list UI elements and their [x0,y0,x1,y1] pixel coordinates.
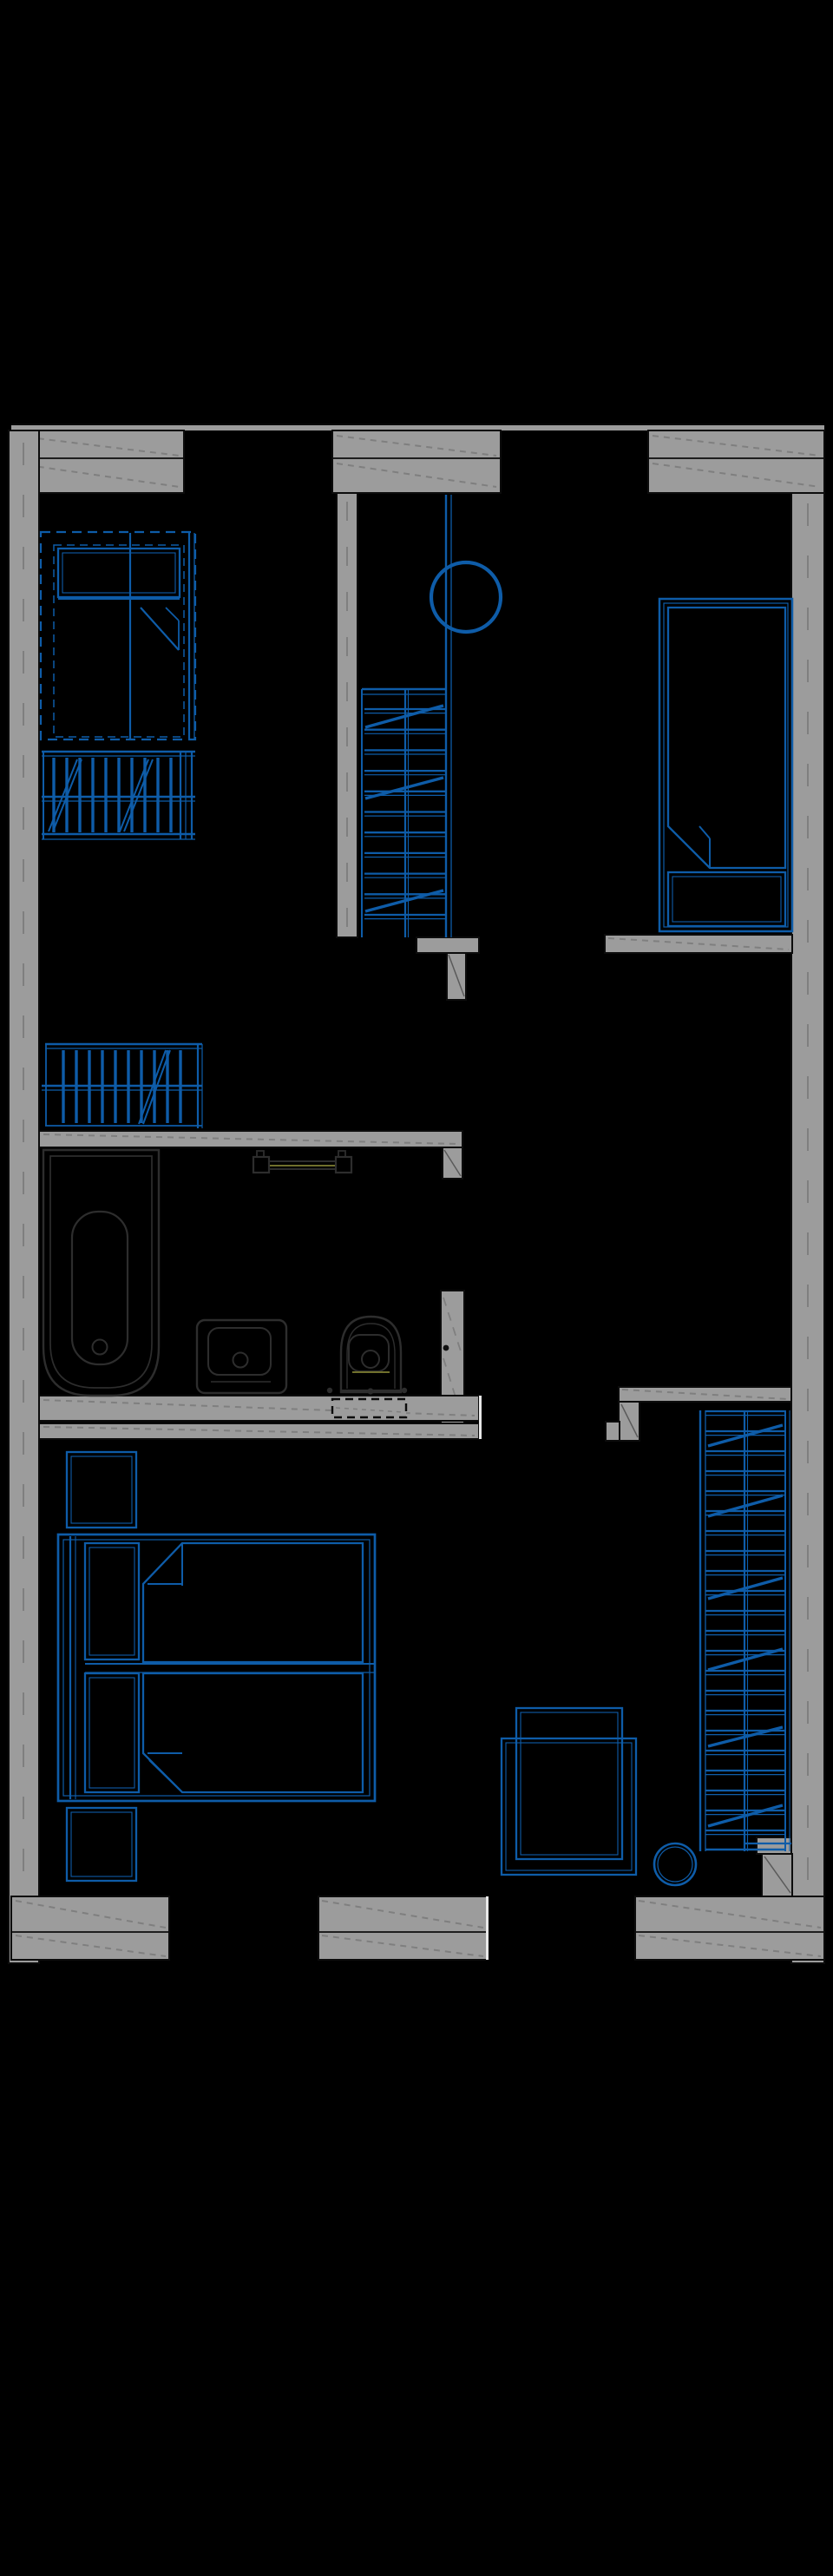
sink-drain [233,1353,248,1368]
bed-single-fold-edge-1 [166,608,179,621]
wall-edge-highlight-bath [479,1396,482,1439]
bed-double-frame-inner [63,1540,370,1796]
bed-guest-pillow [668,872,785,926]
bed-double-duvet-2-fold-diag [149,1760,179,1789]
bidet-inner-arch [347,1324,395,1389]
bed-double-pillow-2-inner [89,1678,134,1788]
wall-edge-highlight-bottom [486,1896,489,1960]
bed-guest-duvet [668,608,785,868]
nightstand-1 [67,1452,136,1528]
bed-guest-pillow-inner [672,877,781,922]
wall-hall-right-stub2 [606,1422,620,1441]
door-threshold-bath [332,1399,406,1417]
bed-double-pillow-2 [85,1673,139,1792]
bidet-drain [362,1350,379,1368]
bed-single-pillow-inner [62,553,175,593]
floor-plan [0,0,833,2576]
bed-single-canopy-inner-dashed [54,545,184,737]
towel-rail-bracket-right [336,1157,351,1173]
bathtub-basin [72,1212,128,1364]
armchair-frame [502,1738,636,1875]
floor-plan-drawing [0,0,833,2576]
bidet-inner-bowl [349,1335,389,1371]
bed-double-pillow-1 [85,1543,139,1659]
bed-single-canopy-dashed [41,532,195,739]
bed-double-frame [58,1534,375,1801]
nightstand-2 [67,1808,136,1881]
bed-guest-frame-inner [664,603,788,927]
door-handle-dot [443,1345,449,1351]
bathtub-inner [50,1156,152,1388]
wall-bottom-left [11,1896,169,1960]
bed-single-pillow [58,549,180,597]
wall-bottom-mid [318,1896,488,1960]
bidet-outer [341,1317,401,1392]
bed-double-pillow-1-inner [89,1548,134,1655]
bidet-hinge-dot-right [402,1388,407,1393]
bed-double-duvet-2 [143,1673,363,1792]
bed-double-duvet-1 [143,1543,363,1662]
wall-bottom-right [635,1896,824,1960]
towel-rail-bracket-left [253,1157,269,1173]
stool-circle-inner [658,1847,692,1882]
bathtub-drain [93,1340,108,1355]
radiator-slats-diag-2b [124,759,153,831]
stairs-upper-newel-circle [431,562,501,632]
armchair-seat-inner [521,1712,618,1855]
armchair-frame-inner [506,1743,632,1870]
wall-landing-left [416,937,479,953]
bed-guest-fold-edge-1 [699,826,710,838]
armchair-seat [516,1708,622,1859]
nightstand-1-inner [71,1456,132,1523]
nightstand-2-inner [71,1812,132,1876]
bidet-hinge-dot-left [327,1388,332,1393]
stool-circle-outer [654,1843,696,1885]
bed-guest-frame [659,599,792,931]
bidet-hinge-dot-mid [367,1388,373,1394]
bathtub-outer [43,1150,159,1396]
